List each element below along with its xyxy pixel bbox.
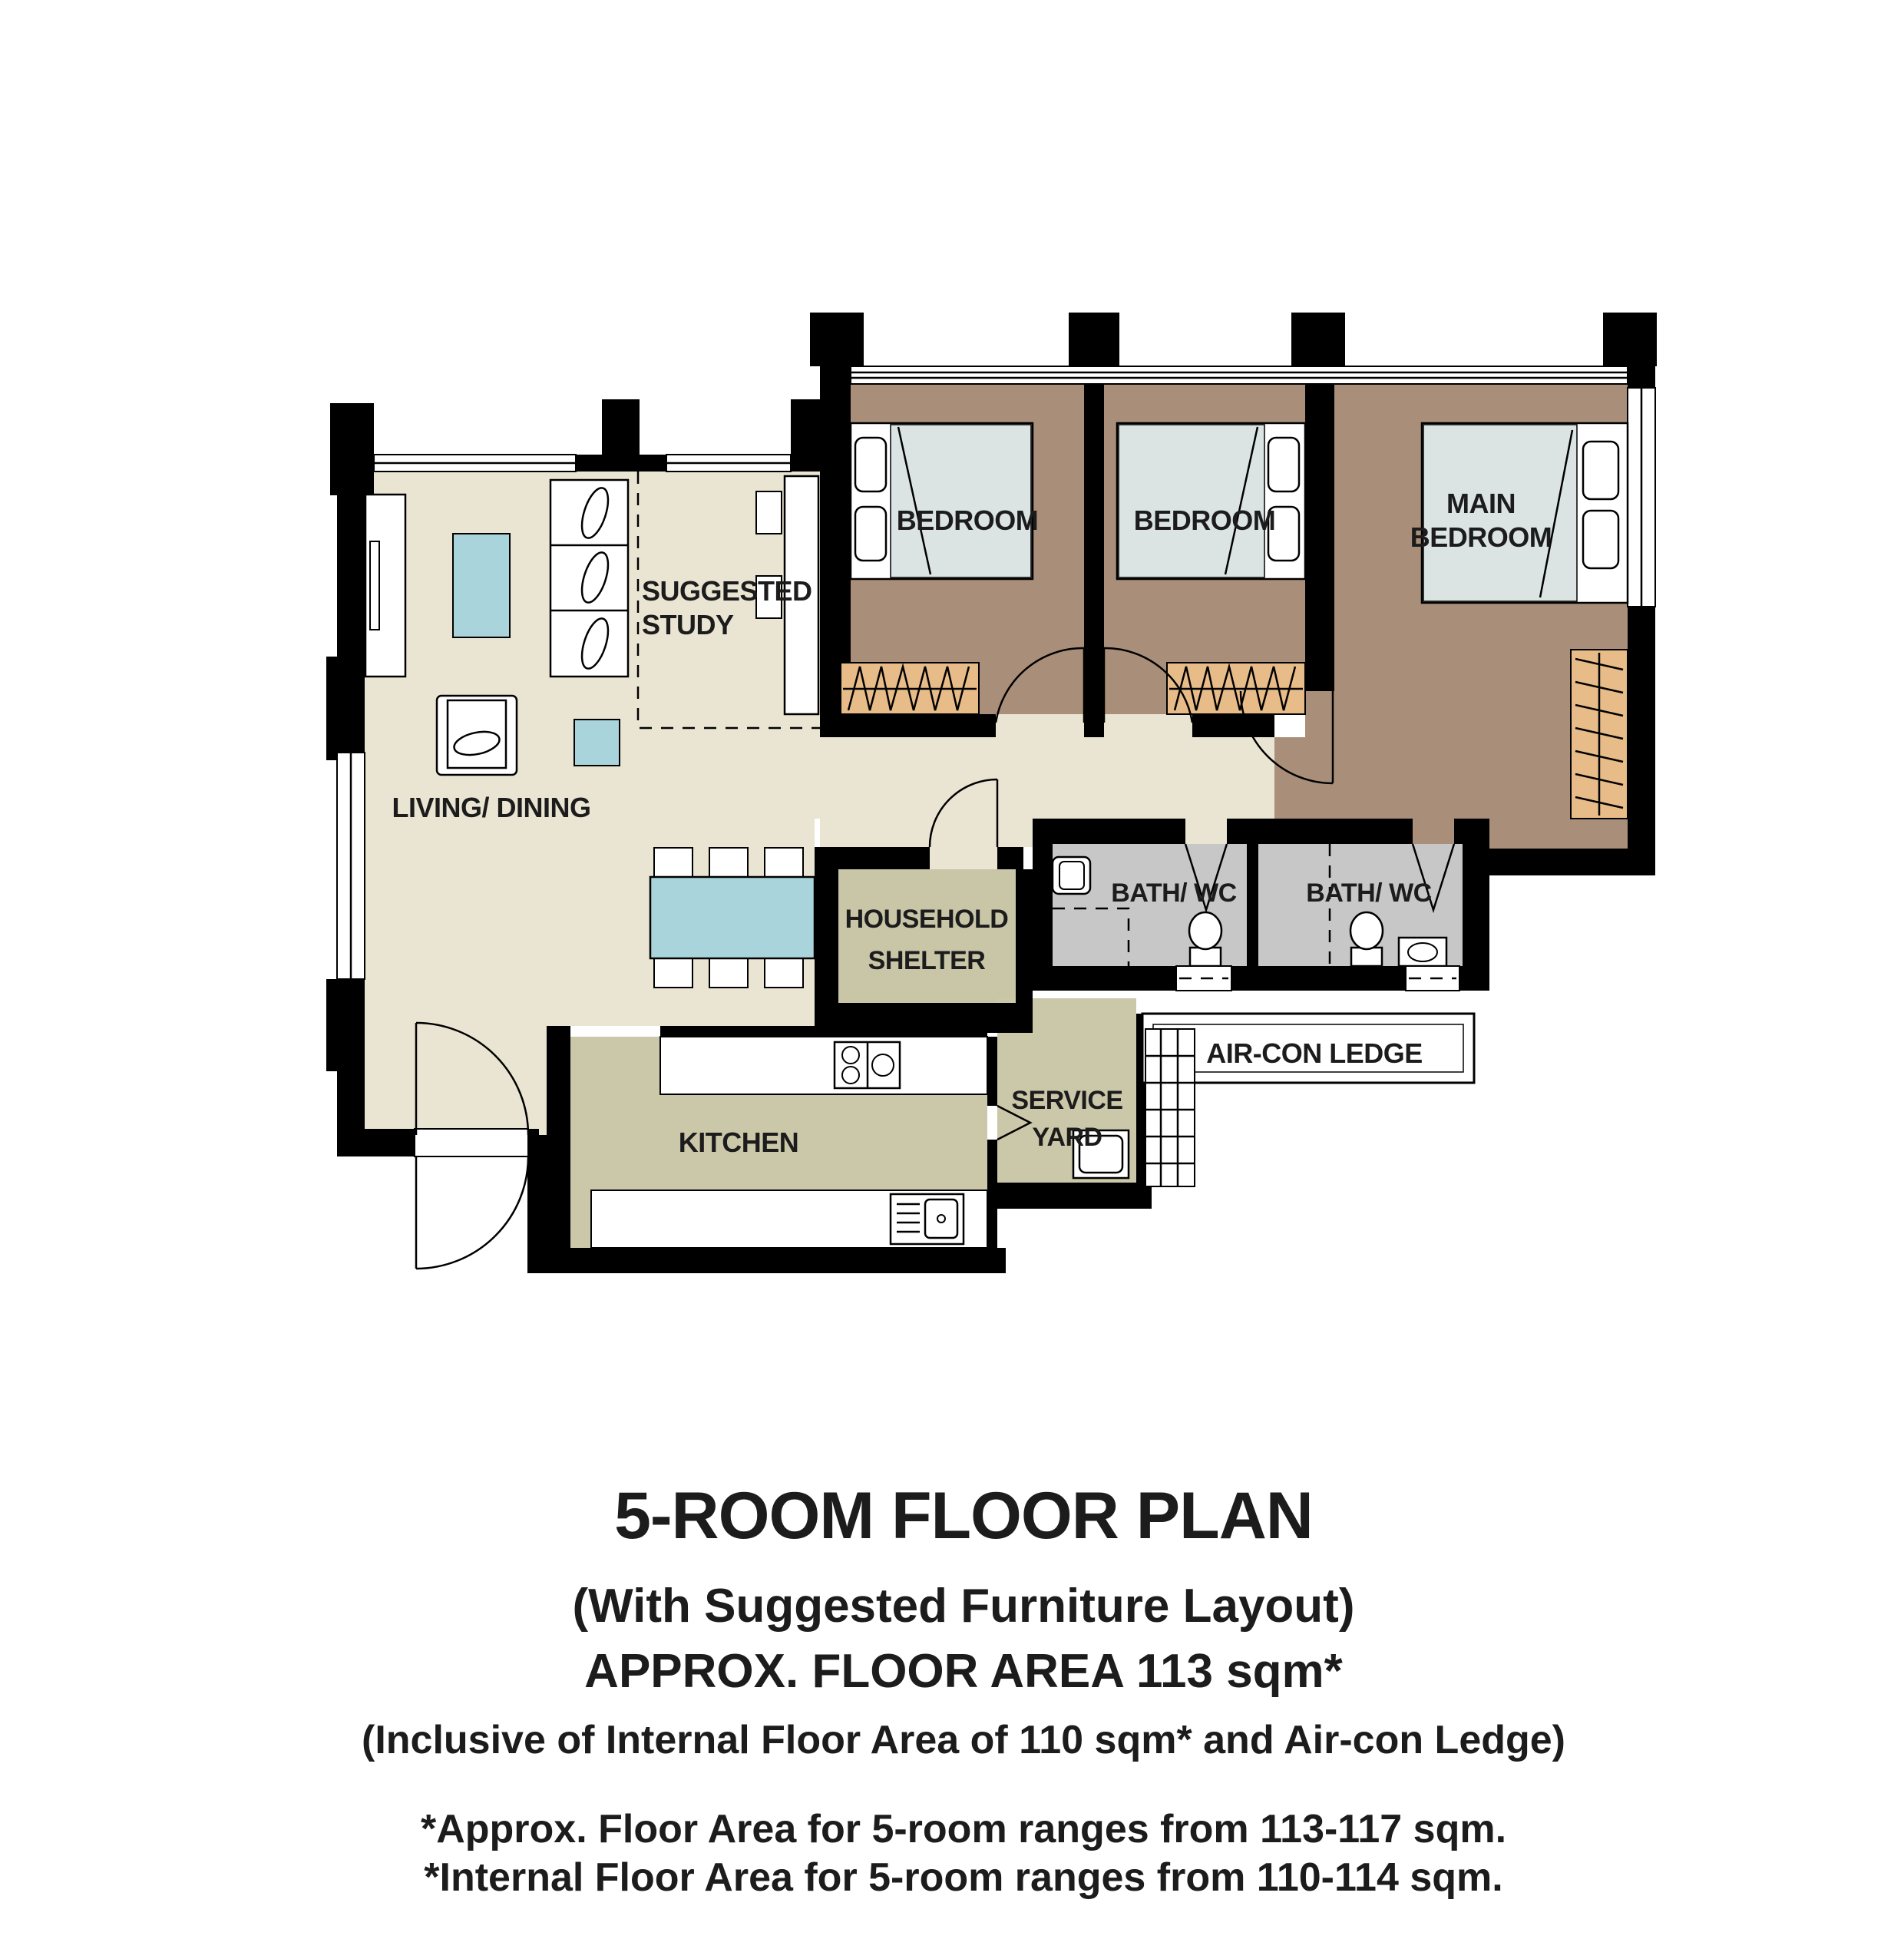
plan-footnote-2: *Internal Floor Area for 5-room ranges f… [424,1855,1502,1900]
wall-segment [576,455,666,472]
main-bedroom-label-line2: BEDROOM [1410,521,1552,553]
wall-segment [1227,819,1413,844]
wall-pillar [1603,313,1657,366]
wall-segment [815,1003,1033,1033]
threshold-bath1 [1185,819,1227,844]
dining-table [650,877,815,958]
wall-segment [330,403,374,495]
wall-segment [1033,819,1185,844]
bath1-vent [1176,966,1231,991]
aircon-ledge-label: AIR-CON LEDGE [1206,1037,1423,1069]
dining-set [650,848,815,988]
bedroom1-label: BEDROOM [897,505,1039,536]
wardrobe-main-bedroom [1571,650,1628,819]
wall-pillar [1291,313,1345,366]
living-window [374,455,576,472]
kitchen-counter-top [660,1037,987,1094]
bedroom2-label: BEDROOM [1134,505,1276,536]
wall-segment [1231,966,1406,991]
wall-segment [997,847,1023,869]
kitchen-label: KITCHEN [679,1127,799,1158]
bath1-label: BATH/ WC [1111,879,1236,908]
coffee-table [453,534,510,637]
stove [835,1042,900,1088]
bath2-sink [1399,938,1446,966]
wall-segment [815,847,930,869]
wall-segment [1084,366,1104,737]
wall-segment [1489,849,1655,875]
tv-console [365,495,405,677]
floor-plan-page: BEDROOM BEDROOM MAIN BEDROOM SUGGESTED S… [0,0,1904,1935]
bedroom-window-band [851,366,1628,384]
plan-subtitle: (With Suggested Furniture Layout) [573,1580,1355,1633]
bed-bedroom1 [851,423,1033,579]
sofa [550,480,628,677]
service-yard-label-line2: YARD [1032,1123,1102,1152]
side-table [574,720,620,766]
wall-segment [1033,966,1176,991]
main-bedroom-window [1628,388,1655,607]
wardrobe-bedroom1 [841,663,979,714]
household-shelter-label-line2: SHELTER [868,946,986,975]
suggested-study-label-line1: SUGGESTED [642,575,812,607]
armchair [437,696,517,775]
threshold-shelter [930,847,997,869]
living-window [666,455,791,472]
threshold-bedroom1 [996,714,1084,737]
bath2-vent [1406,966,1459,991]
living-dining-label: LIVING/ DINING [392,792,590,823]
living-left-window [337,753,365,979]
bath1-basin [1053,857,1090,894]
wall-segment [987,1037,997,1106]
title-block: 5-ROOM FLOOR PLAN (With Suggested Furnit… [362,1479,1565,1900]
wall-segment [1454,819,1489,844]
wall-segment [602,399,640,458]
wall-pillar [810,313,864,366]
floor-plan-svg: BEDROOM BEDROOM MAIN BEDROOM SUGGESTED S… [0,0,1904,1935]
wall-segment [820,714,996,737]
plan-area-line: APPROX. FLOOR AREA 113 sqm* [584,1645,1344,1698]
bath1-toilet [1189,912,1221,966]
aircon-ledge-ladder [1145,1029,1195,1186]
kitchen-sink [891,1194,964,1244]
plan-title: 5-ROOM FLOOR PLAN [614,1479,1313,1553]
wall-segment [547,1026,570,1273]
wall-segment [337,1129,415,1156]
threshold-bath2 [1413,819,1454,844]
wall-segment [1247,844,1258,966]
plan-inclusive-line: (Inclusive of Internal Floor Area of 110… [362,1718,1565,1762]
household-shelter-label-line1: HOUSEHOLD [845,905,1009,934]
wall-segment [1192,714,1274,737]
wall-segment [1305,366,1334,691]
bed-bedroom2 [1117,423,1305,579]
service-yard-label-line1: SERVICE [1011,1086,1122,1115]
threshold-bedroom2 [1104,714,1192,737]
plan-footnote-1: *Approx. Floor Area for 5-room ranges fr… [421,1807,1506,1851]
suggested-study-label-line2: STUDY [642,609,734,640]
wall-segment [326,979,337,1071]
main-bedroom-label-line1: MAIN [1446,488,1516,519]
wall-segment [987,1183,1152,1209]
wall-segment [1459,966,1489,991]
bath2-label: BATH/ WC [1306,879,1431,908]
entrance-frame [415,1129,528,1156]
bath2-toilet [1350,912,1383,966]
wall-pillar [1069,313,1119,366]
shelter-floor [838,869,1016,1003]
wall-segment [326,657,337,760]
wall-segment [536,1248,1006,1273]
